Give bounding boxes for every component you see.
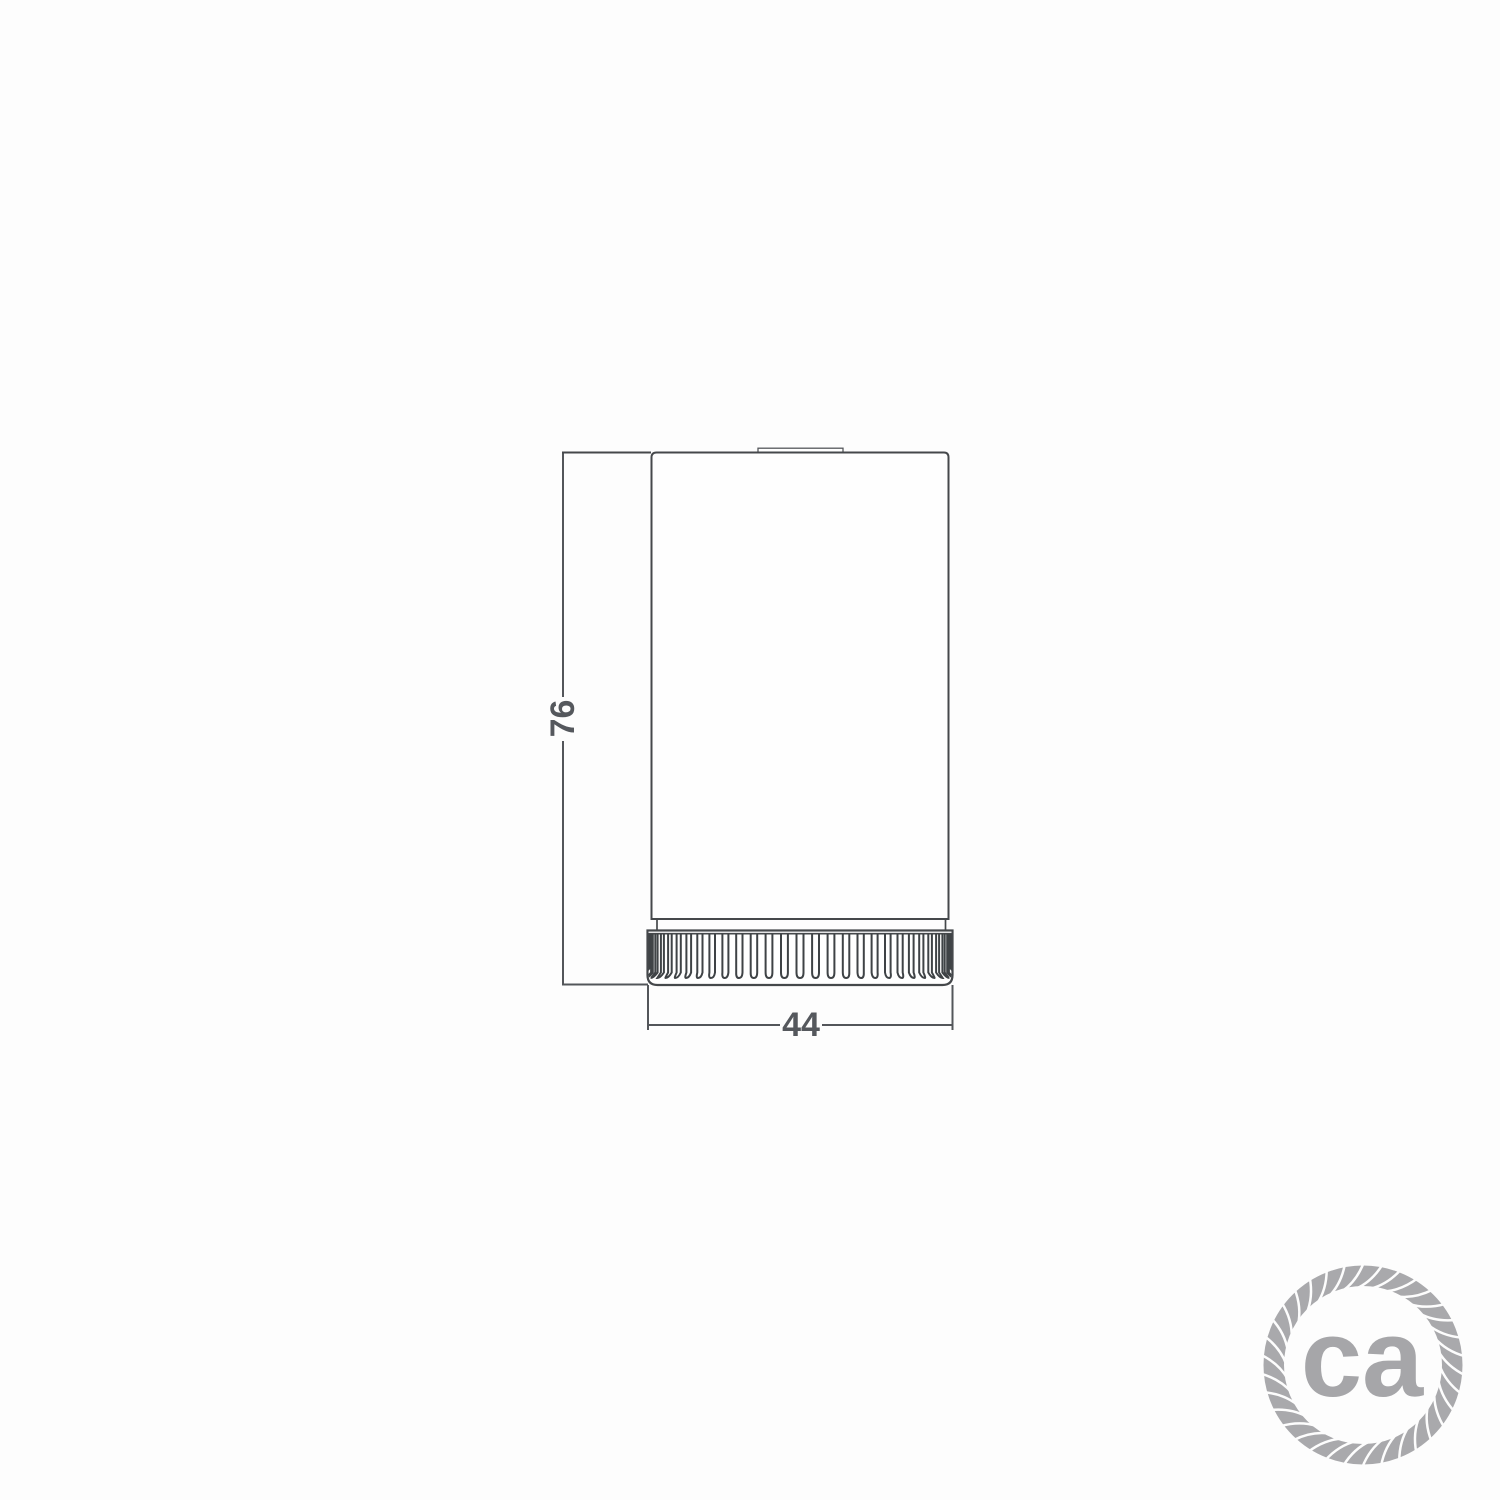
svg-text:76: 76	[544, 700, 582, 738]
svg-text:ca: ca	[1301, 1297, 1424, 1420]
svg-text:44: 44	[782, 1006, 820, 1044]
